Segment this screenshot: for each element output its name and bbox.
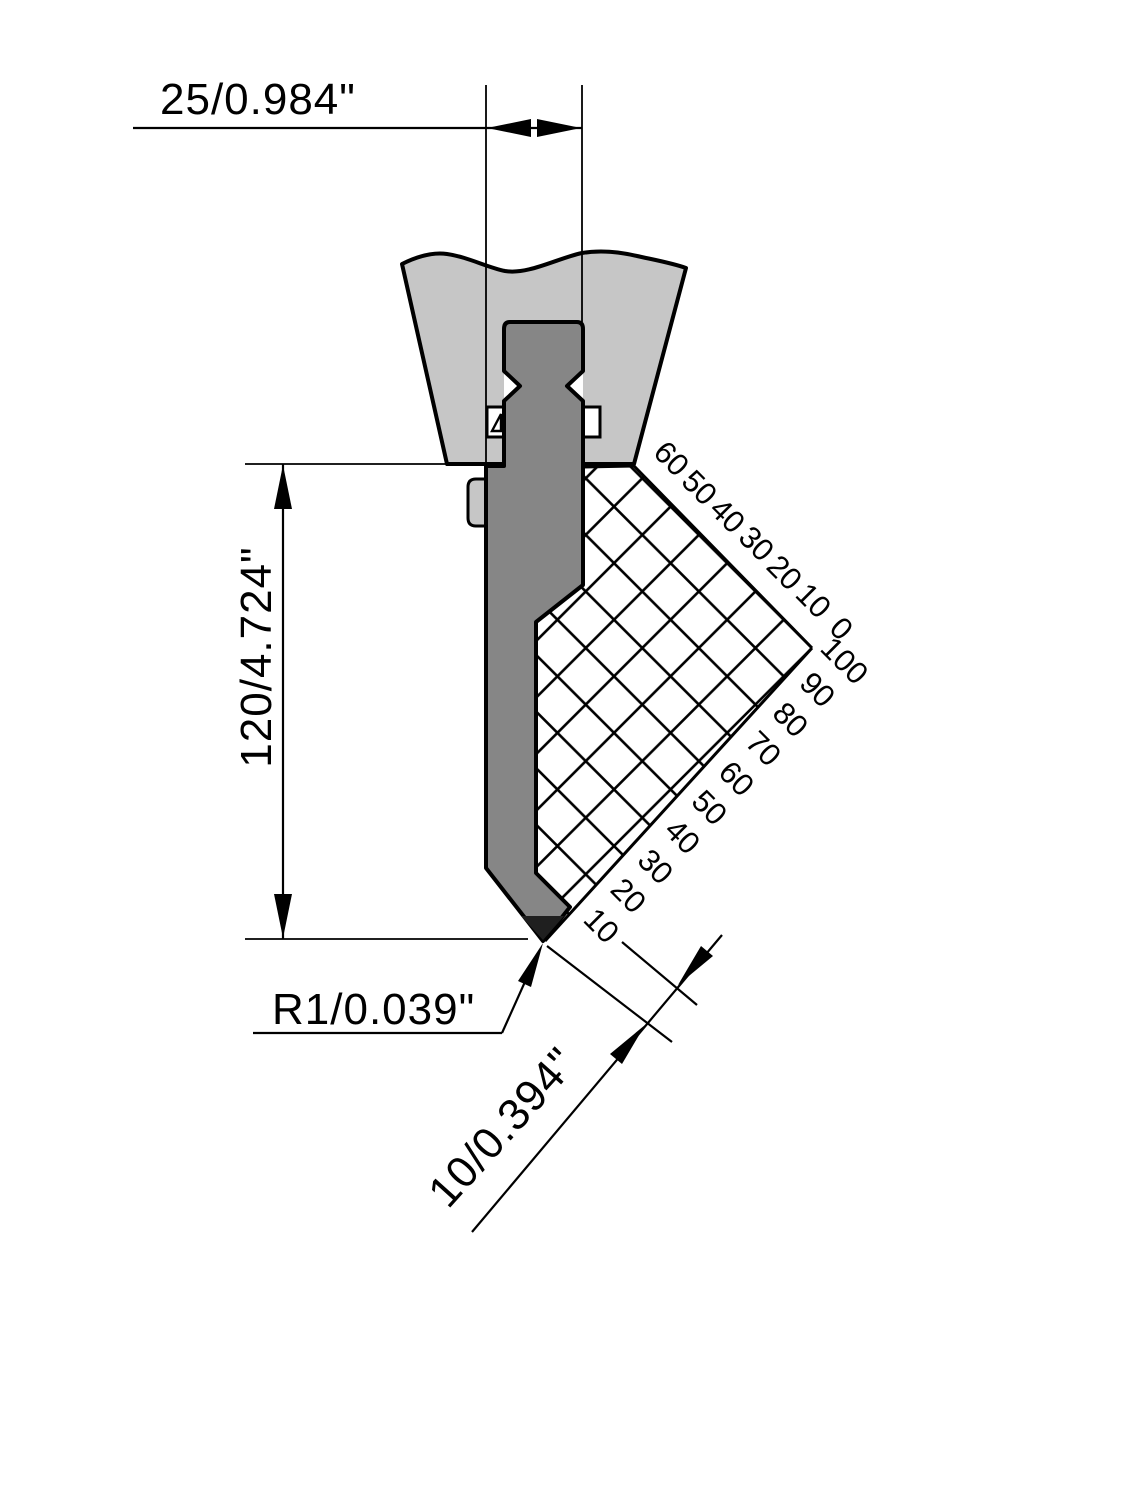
safety-tab [468, 479, 486, 526]
clamp-slot-right [583, 407, 600, 437]
technical-drawing-page: 25/0.984" 120/4.724" R1/0.039" 10/0.394"… [0, 0, 1124, 1500]
punch-technical-drawing: 25/0.984" 120/4.724" R1/0.039" 10/0.394"… [0, 0, 1124, 1500]
dim-radius-label: R1/0.039" [272, 985, 475, 1034]
dim-height-label: 120/4.724" [232, 546, 281, 767]
dim-width-label: 25/0.984" [160, 75, 356, 124]
